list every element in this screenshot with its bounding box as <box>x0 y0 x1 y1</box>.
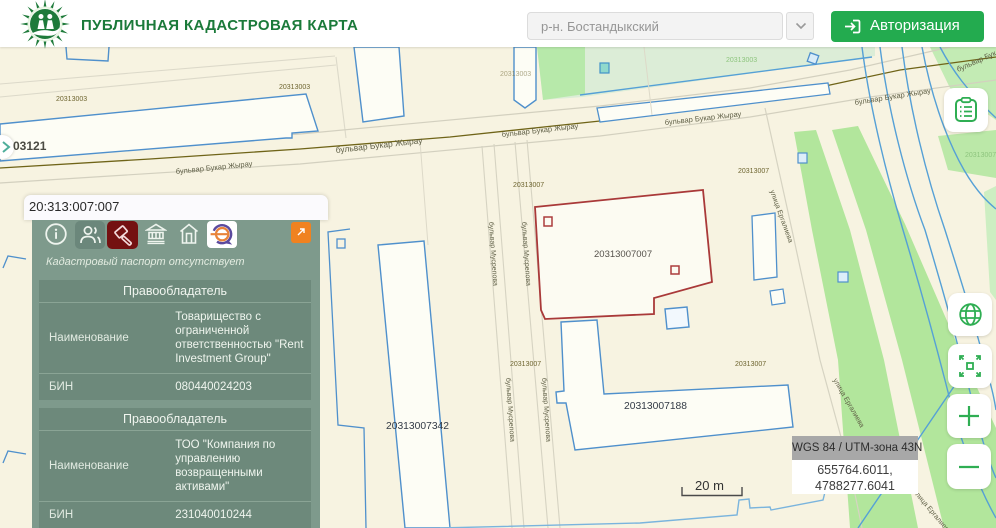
svg-text:20313007: 20313007 <box>965 152 996 159</box>
svg-text:20313007342: 20313007342 <box>386 421 449 432</box>
svg-text:20313003: 20313003 <box>56 96 87 103</box>
svg-text:20313007188: 20313007188 <box>624 401 687 412</box>
svg-text:20313003: 20313003 <box>279 84 310 91</box>
svg-text:20313007: 20313007 <box>513 182 544 189</box>
svg-text:20313007007: 20313007007 <box>594 249 652 260</box>
svg-text:20313007: 20313007 <box>510 361 541 368</box>
svg-text:20313007: 20313007 <box>735 361 766 368</box>
svg-text:20313003: 20313003 <box>500 71 531 78</box>
svg-text:20313003: 20313003 <box>726 57 757 64</box>
svg-text:20313007: 20313007 <box>738 168 769 175</box>
